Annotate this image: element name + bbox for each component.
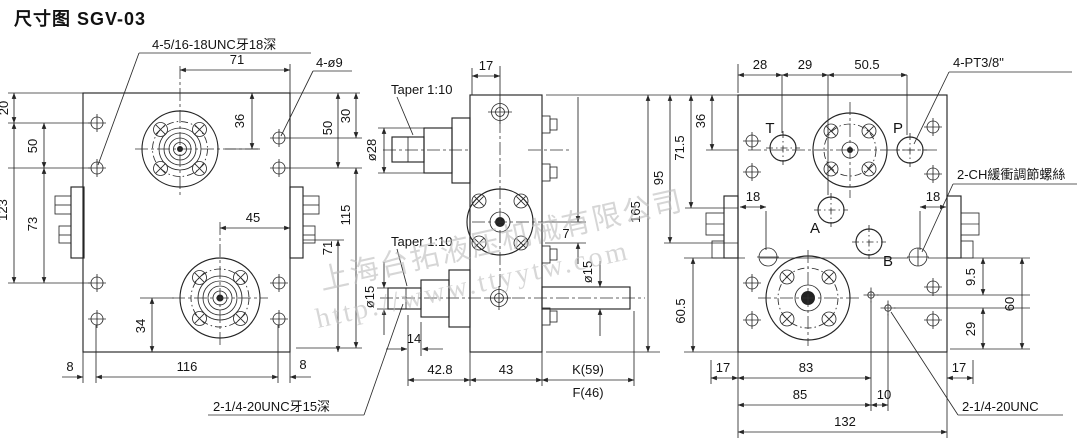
dim-14: 14 [407, 331, 421, 346]
front-hole [88, 274, 106, 292]
dim-18-left: 18 [746, 189, 760, 204]
port-hole [924, 165, 942, 183]
cushion-screw-right [907, 248, 929, 266]
dim-10: 10 [877, 387, 891, 402]
callout-unc-top: 4-5/16-18UNC牙18深 [152, 37, 276, 52]
dim-83: 83 [799, 360, 813, 375]
front-hole [270, 274, 288, 292]
port-t: T [765, 120, 800, 165]
port-hole [924, 278, 942, 296]
dim-f46: F(46) [572, 385, 603, 400]
front-right-tab [290, 187, 319, 258]
dim-116: 116 [177, 359, 198, 374]
callout-ch: 2-CH緩衝調節螺絲 [957, 167, 1065, 182]
callout-unc-bottom: 2-1/4-20UNC牙15深 [213, 399, 330, 414]
dim-17-bottom-right: 17 [952, 360, 966, 375]
dim-29-right: 29 [963, 322, 978, 336]
callout-4-holes: 4-ø9 [316, 55, 343, 70]
dim-36: 36 [232, 114, 247, 128]
tapped-hole [881, 301, 896, 316]
dim-132: 132 [834, 414, 856, 429]
dim-36-port: 36 [693, 114, 708, 128]
dim-17-bottom-left: 17 [716, 360, 730, 375]
dim-8-left: 8 [66, 359, 73, 374]
dim-17-side: 17 [479, 58, 493, 73]
port-hole [743, 132, 761, 150]
page-title: 尺寸图 SGV-03 [14, 8, 146, 29]
dim-50-left: 50 [25, 139, 40, 153]
dimension-drawing: 尺寸图 SGV-03 [0, 0, 1078, 447]
dim-45: 45 [246, 210, 260, 225]
callout-taper-upper: Taper 1:10 [391, 82, 452, 97]
front-hole [88, 310, 106, 328]
dim-85: 85 [793, 387, 807, 402]
front-view: 71 20 50 73 123 36 30 50 115 71 45 34 11… [0, 0, 472, 415]
port-b-label: B [883, 253, 893, 270]
dim-43: 43 [499, 362, 513, 377]
front-hole [88, 159, 106, 177]
dim-k59: K(59) [572, 362, 604, 377]
front-left-tab [55, 187, 84, 258]
front-hole [270, 159, 288, 177]
dim-29-top: 29 [798, 57, 812, 72]
dim-71-right: 71 [320, 241, 335, 255]
callout-pt: 4-PT3/8" [953, 55, 1004, 70]
dim-30: 30 [338, 109, 353, 123]
port-a: A [810, 193, 848, 237]
dim-20: 20 [0, 101, 11, 115]
dim-9-5: 9.5 [963, 268, 978, 286]
front-hole [270, 129, 288, 147]
port-hole [743, 274, 761, 292]
dim-34: 34 [133, 319, 148, 333]
port-right-tab [947, 196, 979, 258]
port-view: T P A B [651, 55, 1077, 438]
port-hole [924, 118, 942, 136]
port-hole [924, 311, 942, 329]
drawing-canvas: 尺寸图 SGV-03 [0, 0, 1078, 447]
port-p-label: P [893, 120, 903, 137]
cushion-screw-left [757, 248, 779, 266]
dim-60-5: 60.5 [673, 298, 688, 323]
dim-71-top: 71 [230, 52, 244, 67]
dim-71-5: 71.5 [672, 135, 687, 160]
front-hole [270, 310, 288, 328]
port-t-label: T [765, 120, 774, 137]
dim-115: 115 [338, 205, 353, 226]
dim-50-right: 50 [320, 121, 335, 135]
port-hole [743, 163, 761, 181]
dim-dia28: ø28 [364, 139, 379, 161]
dim-95: 95 [651, 171, 666, 185]
front-hole [88, 114, 106, 132]
dim-50-5: 50.5 [854, 57, 879, 72]
dim-42-8: 42.8 [427, 362, 452, 377]
port-hole [743, 311, 761, 329]
dim-123: 123 [0, 199, 10, 221]
tapped-hole [864, 288, 879, 303]
port-a-label: A [810, 220, 820, 237]
port-left-tab [706, 196, 738, 258]
dim-8-right: 8 [299, 357, 306, 372]
dim-18-right: 18 [926, 189, 940, 204]
callout-unc-right: 2-1/4-20UNC [962, 399, 1039, 414]
port-b: B [852, 225, 893, 270]
dim-28: 28 [753, 57, 767, 72]
dim-60: 60 [1002, 297, 1017, 311]
dim-73: 73 [25, 217, 40, 231]
